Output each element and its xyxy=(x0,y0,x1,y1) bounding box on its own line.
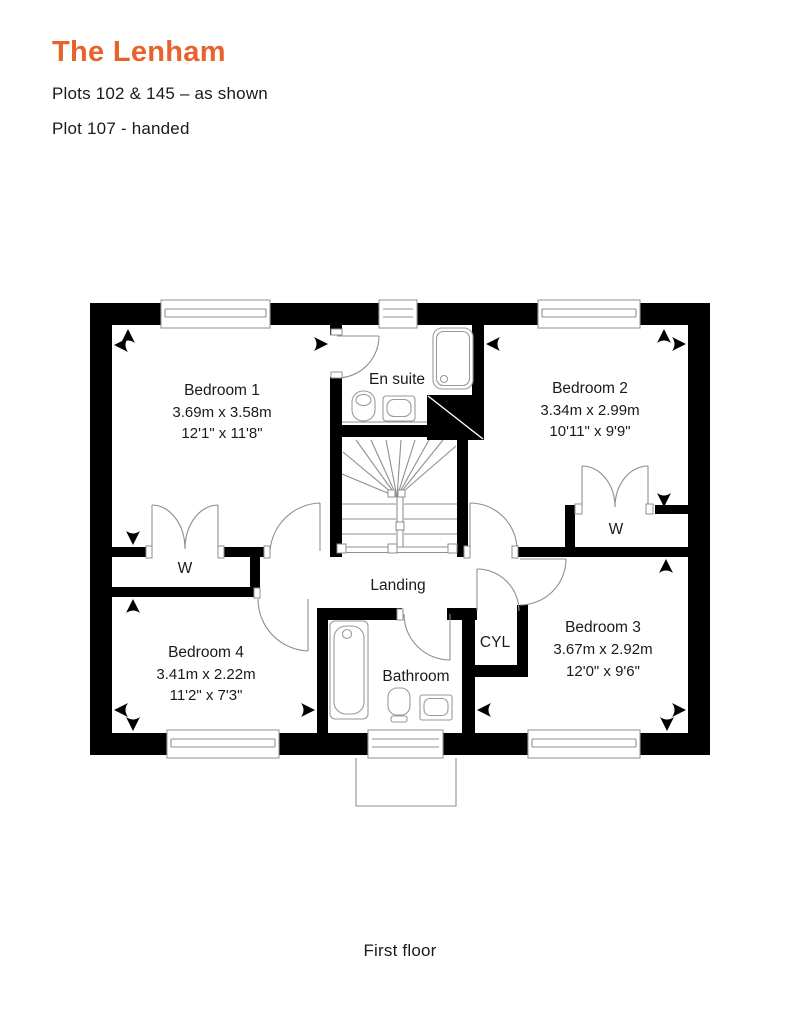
door-arc xyxy=(404,614,450,660)
window xyxy=(538,300,640,328)
dimension-arrow xyxy=(126,717,140,731)
room-label-bedroom2: Bedroom 2 xyxy=(552,380,628,397)
floor-plan-drawing: Bedroom 1 3.69m x 3.58m 12'1" x 11'8" En… xyxy=(0,0,800,1036)
room-dims-metric: 3.67m x 2.92m xyxy=(553,641,652,658)
window xyxy=(528,730,640,758)
dimension-arrow xyxy=(477,703,491,717)
window xyxy=(161,300,270,328)
room-dims-metric: 3.41m x 2.22m xyxy=(156,666,255,683)
stairs xyxy=(337,440,457,553)
shower-icon xyxy=(433,328,473,389)
dimension-arrow xyxy=(657,493,671,507)
dimension-arrow xyxy=(672,337,686,351)
room-dims-metric: 3.69m x 3.58m xyxy=(172,404,271,421)
dimension-arrow xyxy=(657,329,671,343)
room-label-bedroom4: Bedroom 4 xyxy=(168,644,244,661)
room-dims-imperial: 11'2" x 7'3" xyxy=(170,687,243,704)
room-label-wardrobe2: W xyxy=(609,521,624,538)
room-label-wardrobe1: W xyxy=(178,560,193,577)
sink-icon xyxy=(420,695,452,720)
door-arc xyxy=(470,503,517,550)
window xyxy=(368,730,443,758)
room-label-bedroom3: Bedroom 3 xyxy=(565,619,641,636)
dimension-arrow xyxy=(314,337,328,351)
bathtub-icon xyxy=(330,621,368,719)
door-arc xyxy=(258,599,308,651)
dimension-arrow xyxy=(659,559,673,573)
sink-icon xyxy=(383,396,415,421)
room-label-cyl: CYL xyxy=(480,634,511,651)
dimension-arrow xyxy=(126,599,140,613)
room-dims-imperial: 12'0" x 9'6" xyxy=(566,663,640,680)
floorplan-page: The Lenham Plots 102 & 145 – as shown Pl… xyxy=(0,0,800,1036)
dimension-arrow xyxy=(126,531,140,545)
room-dims-imperial: 10'11" x 9'9" xyxy=(549,423,630,440)
room-label-landing: Landing xyxy=(370,577,425,594)
wardrobe-doors xyxy=(152,505,218,549)
toilet-icon xyxy=(388,688,410,722)
room-label-bedroom1: Bedroom 1 xyxy=(184,382,260,399)
room-label-bathroom: Bathroom xyxy=(382,668,449,685)
door-arc xyxy=(270,503,320,551)
floor-caption: First floor xyxy=(0,941,800,961)
wardrobe-doors xyxy=(582,466,648,507)
room-label-ensuite: En suite xyxy=(369,371,425,388)
bay-outline xyxy=(356,758,456,806)
door-arc xyxy=(520,559,566,605)
room-dims-metric: 3.34m x 2.99m xyxy=(540,402,639,419)
window xyxy=(167,730,279,758)
dimension-arrow xyxy=(486,337,500,351)
dimension-arrow xyxy=(301,703,315,717)
room-dims-imperial: 12'1" x 11'8" xyxy=(181,425,262,442)
window xyxy=(379,300,417,328)
dimension-arrow xyxy=(114,338,128,352)
door-arc xyxy=(477,569,519,611)
dimension-arrow xyxy=(660,717,674,731)
dimension-arrow xyxy=(114,703,128,717)
dimension-arrow xyxy=(672,703,686,717)
toilet-icon xyxy=(352,391,375,421)
